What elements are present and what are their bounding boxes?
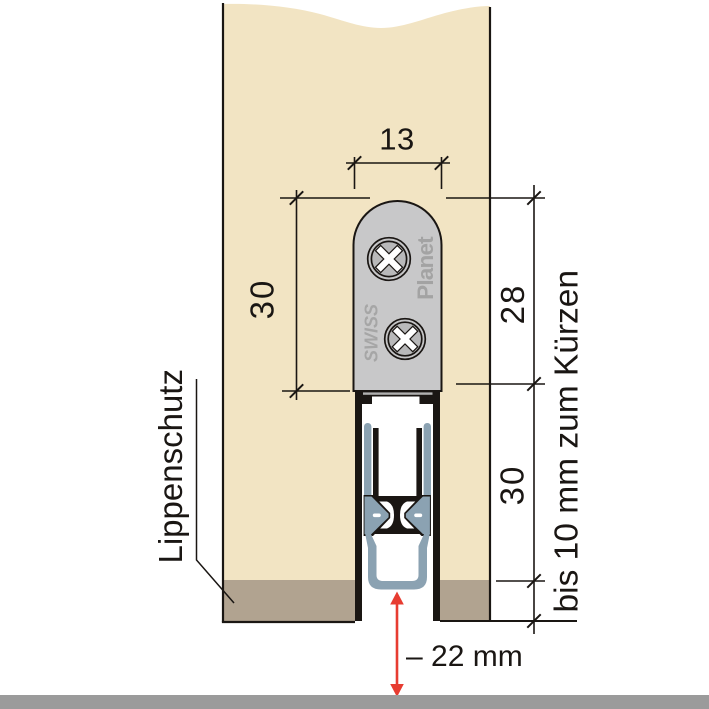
svg-text:Planet: Planet bbox=[413, 236, 438, 300]
svg-text:– 22 mm: – 22 mm bbox=[406, 640, 523, 673]
svg-text:SWISS: SWISS bbox=[361, 304, 381, 362]
svg-text:30: 30 bbox=[494, 465, 531, 506]
svg-text:30: 30 bbox=[244, 279, 281, 320]
svg-text:28: 28 bbox=[494, 284, 531, 325]
svg-text:Lippenschutz: Lippenschutz bbox=[152, 369, 189, 563]
svg-text:13: 13 bbox=[379, 122, 414, 157]
svg-text:bis 10 mm zum Kürzen: bis 10 mm zum Kürzen bbox=[549, 270, 586, 613]
